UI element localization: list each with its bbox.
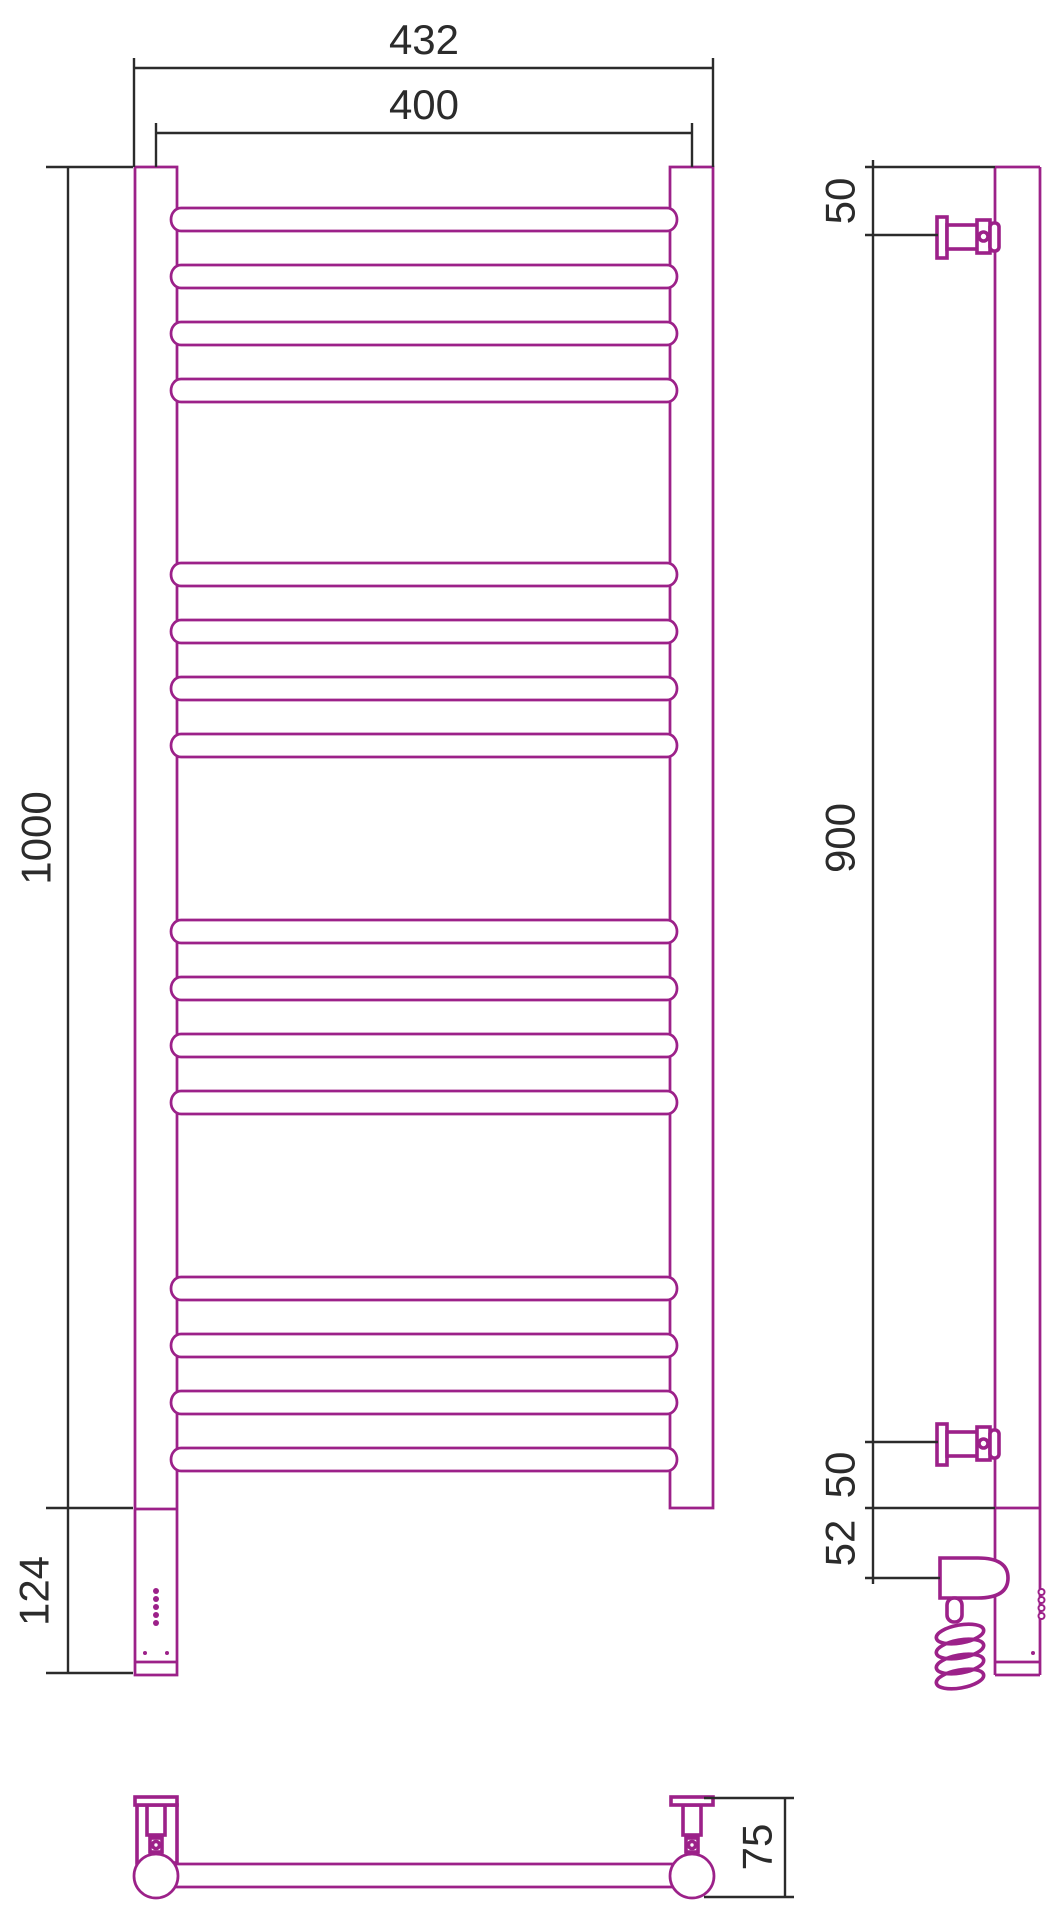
dim-label-124: 124 [11,1556,58,1626]
side-bottom-bracket [937,1424,999,1465]
rung [171,677,677,700]
led-dot [153,1604,159,1610]
bottom-dimensions: 75 [704,1798,794,1897]
led-bump [1039,1597,1045,1603]
rung [171,1277,677,1300]
coil-loop [935,1651,985,1677]
dim-label-52: 52 [817,1520,864,1567]
screw-dot [1031,1651,1035,1655]
led-bump [1039,1605,1045,1611]
bottom-left-rail-circle [134,1854,178,1898]
front-right-rail [670,167,713,1508]
bracket-arm [683,1805,701,1835]
rung [171,1091,677,1114]
led-indicators [153,1588,159,1626]
bracket-arm [947,1432,978,1456]
side-view [935,167,1045,1692]
led-dot [153,1612,159,1618]
dim-label-400: 400 [389,81,459,128]
dim-label-900: 900 [817,803,864,873]
bottom-tube [156,1864,692,1887]
screw-dot [143,1651,147,1655]
side-dimensions: 50 900 50 52 [817,160,996,1584]
dim-label-50-top: 50 [817,178,864,225]
led-dot [153,1588,159,1594]
dim-label-1000: 1000 [13,791,60,884]
bracket-arm [147,1805,165,1835]
bracket-cap [990,1430,999,1458]
led-dot [153,1620,159,1626]
rung [171,265,677,288]
coil-loop [935,1621,985,1647]
led-bump [1039,1589,1045,1595]
rung [171,1391,677,1414]
rung [171,620,677,643]
coil-loop [935,1666,985,1692]
cable-neck [947,1598,962,1622]
bottom-view [134,1797,714,1898]
side-top-bracket [937,217,999,258]
front-rungs [171,208,677,1471]
rung [171,1034,677,1057]
led-dot [153,1596,159,1602]
drawing-canvas: 432 400 1000 124 [0,0,1063,1920]
cable-coil [935,1621,985,1692]
dim-label-432: 432 [389,16,459,63]
dim-label-50-bottom: 50 [817,1452,864,1499]
rung [171,1448,677,1471]
rung [171,977,677,1000]
led-bump [1039,1613,1045,1619]
rung [171,1334,677,1357]
rung [171,208,677,231]
bracket-arm [947,225,978,249]
dim-label-75: 75 [734,1824,781,1871]
rung [171,379,677,402]
bottom-right-rail-circle [670,1854,714,1898]
rung [171,920,677,943]
screw-dot [165,1651,169,1655]
rung [171,734,677,757]
element-housing [940,1558,1008,1598]
bracket-cap [990,223,999,251]
rung [171,563,677,586]
front-view [135,167,713,1675]
coil-loop [935,1636,985,1662]
wall-flange [135,1797,177,1805]
technical-drawing: 432 400 1000 124 [0,0,1063,1920]
heating-element [935,1558,1008,1692]
rung [171,322,677,345]
